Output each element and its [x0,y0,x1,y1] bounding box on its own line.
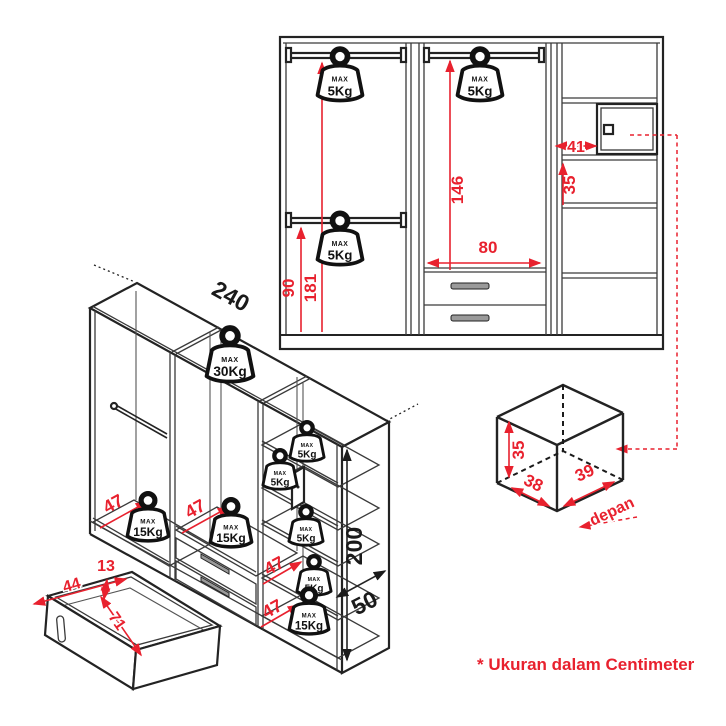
dim-left-floor-depth: 47 [99,490,126,517]
front-elevation-view: 90 181 146 80 41 35 MAX 5Kg [279,37,677,449]
dim-mid-width: 80 [479,238,498,257]
svg-text:5Kg: 5Kg [328,248,353,263]
svg-text:5Kg: 5Kg [328,83,353,98]
dim-drawer-height: 13 [97,558,115,575]
door-handle [604,125,613,134]
dim-box-width: 38 [521,470,546,495]
svg-text:15Kg: 15Kg [216,531,246,545]
drawer-handle [451,283,489,289]
svg-text:5Kg: 5Kg [271,477,290,488]
svg-text:MAX: MAX [274,471,287,477]
dim-total-width: 240 [208,275,254,316]
dim-cubby-width: 41 [567,139,585,156]
wardrobe-diagram: 90 181 146 80 41 35 MAX 5Kg [0,0,726,726]
dim-mid-floor-depth: 47 [181,495,208,522]
dim-box-height: 35 [509,441,528,460]
drawer-handle [201,554,229,574]
max-weight-5kg-icon: MAX 5Kg [289,506,323,545]
box-front-label: depan [587,494,637,529]
svg-text:MAX: MAX [302,613,317,619]
svg-text:MAX: MAX [301,443,314,449]
dim-box-depth: 39 [572,460,597,485]
dim-lower-rail-height: 90 [279,279,298,298]
small-cubby-door [597,104,657,154]
front-middle-drawers [424,268,546,321]
dim-upper-rail-height: 181 [301,274,320,302]
dim-total-height: 200 [341,527,367,565]
diagram-page: 90 181 146 80 41 35 MAX 5Kg [0,0,726,726]
svg-text:MAX: MAX [308,577,321,583]
svg-text:15Kg: 15Kg [295,620,323,632]
leader-dashed-line [617,135,677,449]
iso-hanging-rail [111,403,167,438]
dim-mid-rail-height: 146 [448,176,467,204]
svg-text:5Kg: 5Kg [297,533,316,544]
svg-text:MAX: MAX [300,527,313,533]
svg-text:15Kg: 15Kg [133,525,163,539]
shelf-box-detail-view: 35 38 39 depan [497,385,637,530]
iso-drawer-front [176,538,256,604]
svg-text:30Kg: 30Kg [213,364,246,379]
svg-text:5Kg: 5Kg [468,83,493,98]
dim-cubby-height: 35 [560,176,579,195]
footnote: * Ukuran dalam Centimeter [477,655,694,675]
svg-text:MAX: MAX [221,356,238,364]
svg-text:5Kg: 5Kg [298,449,317,460]
drawer-handle [451,315,489,321]
